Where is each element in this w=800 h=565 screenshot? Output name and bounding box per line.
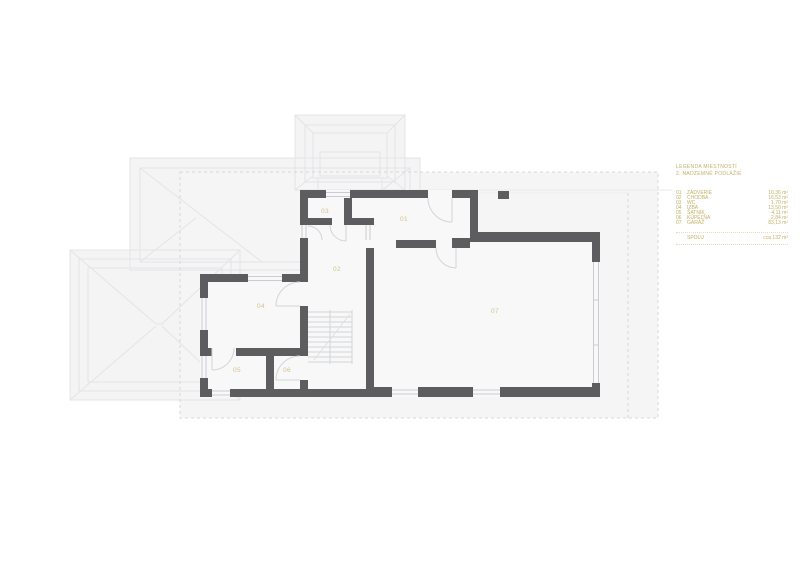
room-label-07: 07 (491, 308, 499, 315)
legend-total-label: SPOLU (676, 236, 763, 241)
legend-title: LEGENDA MIESTNOSTÍ (676, 164, 788, 171)
room-label-02: 02 (333, 266, 341, 273)
page: 01 02 03 04 05 06 07 LEGENDA MIESTNOSTÍ … (0, 0, 800, 565)
floor-plan-drawing: 01 02 03 04 05 06 07 (0, 0, 800, 565)
legend-room-number: 07 (676, 221, 687, 226)
room-label-03: 03 (321, 208, 329, 215)
room-label-04: 04 (257, 303, 265, 310)
legend-row: 07 GARÁŽ 83,13 m² (676, 221, 788, 226)
legend-rows: 01 ZÁDVERIE 10,36 m² 02 CHODBA 16,53 m² … (676, 191, 788, 226)
legend-subtitle: 2. NADZEMNÉ PODLAŽIE (676, 171, 788, 178)
room-label-06: 06 (283, 367, 291, 374)
room-legend: LEGENDA MIESTNOSTÍ 2. NADZEMNÉ PODLAŽIE … (676, 164, 788, 245)
room-label-01: 01 (400, 216, 408, 223)
legend-room-name: GARÁŽ (687, 221, 768, 226)
legend-total-row: SPOLU cca 132 m² (676, 232, 788, 245)
legend-total-value: cca 132 m² (763, 236, 788, 241)
room-label-05: 05 (233, 367, 241, 374)
legend-room-area: 83,13 m² (768, 221, 788, 226)
